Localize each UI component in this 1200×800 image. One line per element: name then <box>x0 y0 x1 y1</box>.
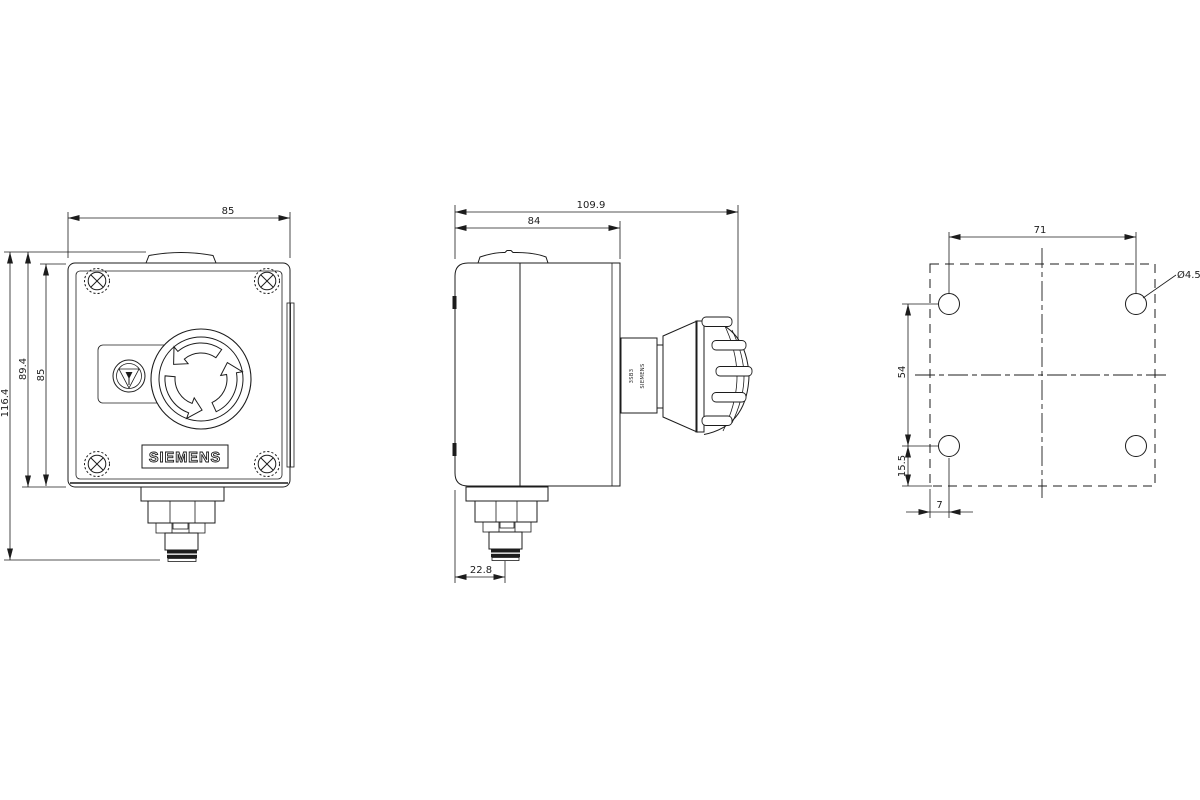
front-cable-gland <box>141 487 224 562</box>
side-emergency-stop-button: 3SB3 SIEMENS <box>621 317 752 435</box>
emergency-stop-button <box>151 329 251 429</box>
turn-to-release-icon <box>113 360 145 392</box>
side-cable-gland <box>466 487 548 561</box>
dim-drill-hole-dia-text: Ø4.5 <box>1177 269 1200 281</box>
brand-label-text: SIEMENS <box>149 450 221 466</box>
dim-side-gland-offset-text: 22.8 <box>470 565 492 576</box>
button-bell <box>663 321 697 432</box>
dim-front-width-text: 85 <box>222 206 235 217</box>
dim-front-height-box-text: 85 <box>36 369 47 382</box>
dim-front-height-total-text: 116.4 <box>0 389 11 418</box>
drill-dim-hole-spacing-h: 71 <box>949 225 1136 293</box>
mushroom-grip-tabs <box>702 317 752 426</box>
drill-pattern-view: 71 Ø4.5 54 15.5 7 <box>897 225 1200 518</box>
dim-drill-side-edge-text: 7 <box>936 500 942 511</box>
dim-front-height-cap-text: 89.4 <box>18 358 29 380</box>
dim-drill-spacing-v-text: 54 <box>897 366 908 379</box>
dimensional-drawing-canvas: 85 116.4 89.4 85 <box>0 0 1200 800</box>
mounting-hole <box>1126 436 1147 457</box>
technical-drawing-page: 85 116.4 89.4 85 <box>0 0 1200 800</box>
dim-drill-spacing-h-text: 71 <box>1034 225 1047 236</box>
button-marking-text: SIEMENS <box>640 363 646 388</box>
latch-mark <box>453 296 457 309</box>
screw-icon <box>255 452 280 477</box>
front-top-cap <box>146 253 216 264</box>
button-collar <box>621 338 657 413</box>
side-enclosure-outline <box>455 263 620 486</box>
latch-mark <box>453 443 457 456</box>
dim-side-depth-total-text: 109.9 <box>577 200 606 211</box>
side-dim-depths: 109.9 84 <box>455 200 738 340</box>
front-side-strip <box>287 303 294 467</box>
mounting-hole <box>939 436 960 457</box>
side-top-cap <box>478 251 548 264</box>
mounting-hole <box>939 294 960 315</box>
screw-icon <box>85 269 110 294</box>
front-dim-width: 85 <box>68 206 290 258</box>
screw-icon <box>85 452 110 477</box>
button-marking-text: 3SB3 <box>629 369 635 384</box>
side-view: 109.9 84 3SB3 SIEMENS <box>453 200 753 583</box>
mounting-hole <box>1126 294 1147 315</box>
drill-dim-vertical: 54 15.5 <box>897 304 938 486</box>
drill-dim-edge: 7 <box>906 458 973 518</box>
brand-label: SIEMENS <box>142 445 228 468</box>
front-view: 85 116.4 89.4 85 <box>0 206 294 562</box>
dim-side-depth-box-text: 84 <box>528 216 541 227</box>
drill-dim-hole-diameter: Ø4.5 <box>1143 269 1200 298</box>
front-dim-heights: 116.4 89.4 85 <box>0 252 160 560</box>
screw-icon <box>255 269 280 294</box>
dim-drill-bottom-edge-text: 15.5 <box>897 455 908 477</box>
side-dim-gland-offset: 22.8 <box>455 490 505 583</box>
